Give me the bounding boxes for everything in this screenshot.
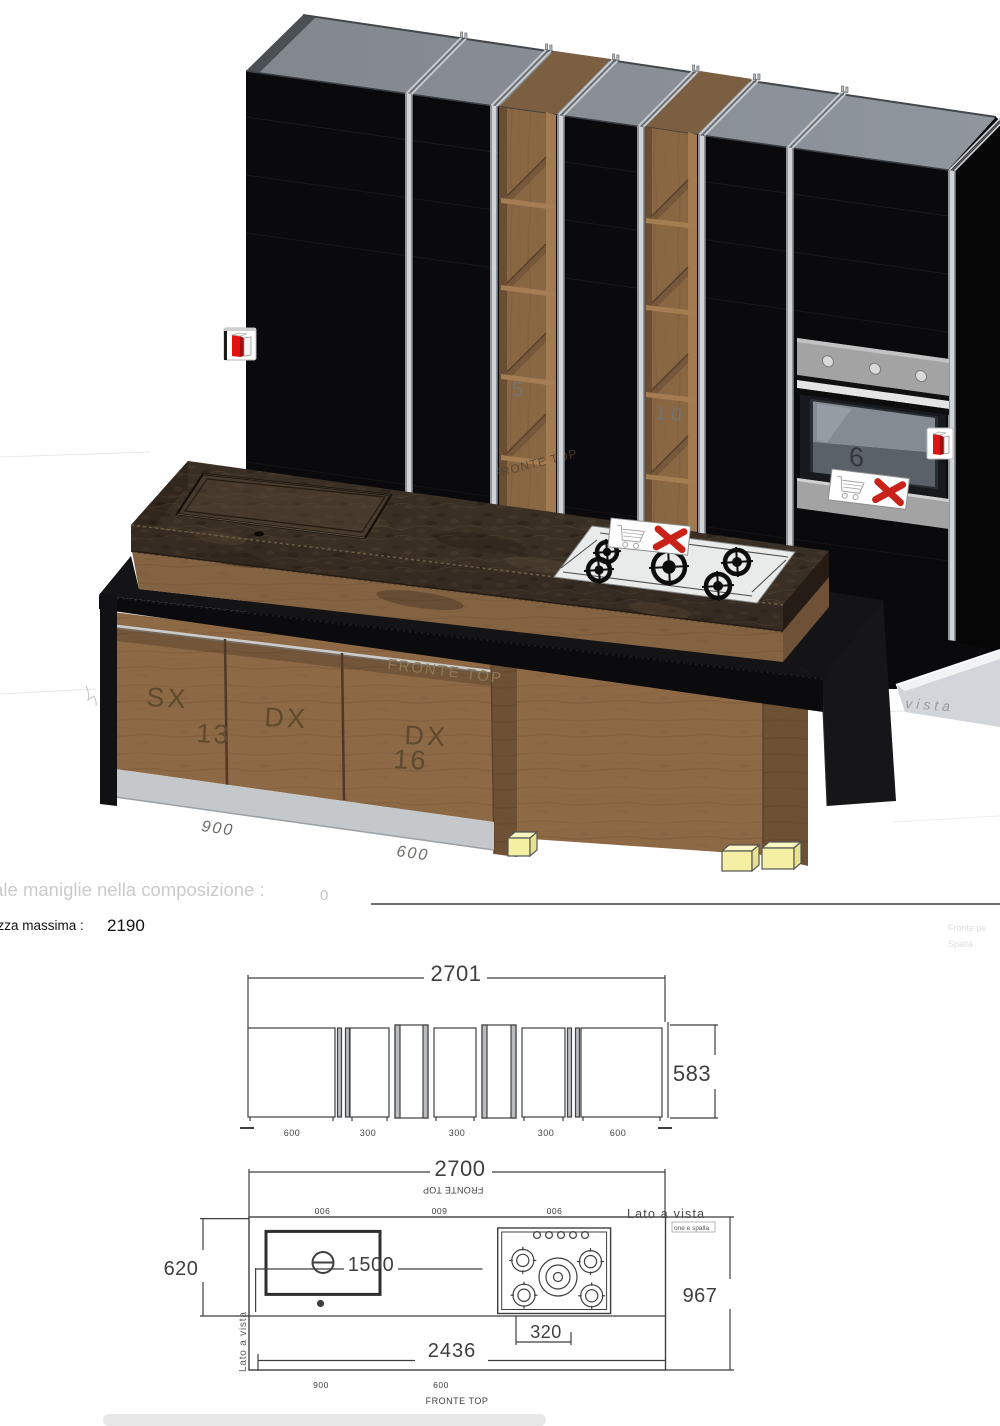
svg-text:Lato a vista: Lato a vista [238,1311,249,1372]
svg-text:1 0: 1 0 [655,403,683,426]
svg-text:13: 13 [196,718,232,750]
svg-text:600: 600 [610,1128,627,1138]
svg-text:967: 967 [683,1285,718,1307]
svg-text:2436: 2436 [428,1340,477,1362]
svg-text:600: 600 [431,1206,447,1216]
svg-text:2701: 2701 [431,961,482,986]
svg-text:5: 5 [511,378,524,402]
svg-text:DX: DX [264,702,309,734]
svg-text:300: 300 [538,1128,555,1138]
svg-text:300: 300 [360,1128,377,1138]
svg-text:620: 620 [164,1258,199,1280]
svg-text:tale maniglie nella composizio: tale maniglie nella composizione : [0,879,265,900]
svg-text:900: 900 [313,1380,329,1390]
svg-text:2190: 2190 [107,916,145,935]
svg-text:one e spalla: one e spalla [674,1225,709,1232]
svg-text:583: 583 [673,1061,711,1086]
svg-text:FRONTE TOP: FRONTE TOP [426,1396,489,1406]
svg-text:600: 600 [284,1128,301,1138]
svg-text:2700: 2700 [435,1156,486,1181]
svg-text:900: 900 [314,1206,330,1216]
svg-text:300: 300 [449,1128,466,1138]
svg-text:Spalla: Spalla [948,939,973,949]
svg-text:320: 320 [530,1322,562,1342]
svg-text:6: 6 [849,440,864,473]
svg-text:0: 0 [320,887,328,904]
svg-text:vista: vista [905,695,955,714]
svg-text:900: 900 [546,1206,562,1216]
svg-text:ezza massima :: ezza massima : [0,918,84,933]
svg-text:16: 16 [393,744,429,776]
svg-text:Lato a vista: Lato a vista [627,1207,705,1221]
svg-text:FRONTE TOP: FRONTE TOP [423,1185,484,1195]
svg-text:SX: SX [146,682,190,714]
svg-text:1500: 1500 [348,1254,395,1276]
svg-text:Fronte pe: Fronte pe [948,923,987,933]
svg-text:600: 600 [433,1380,449,1390]
